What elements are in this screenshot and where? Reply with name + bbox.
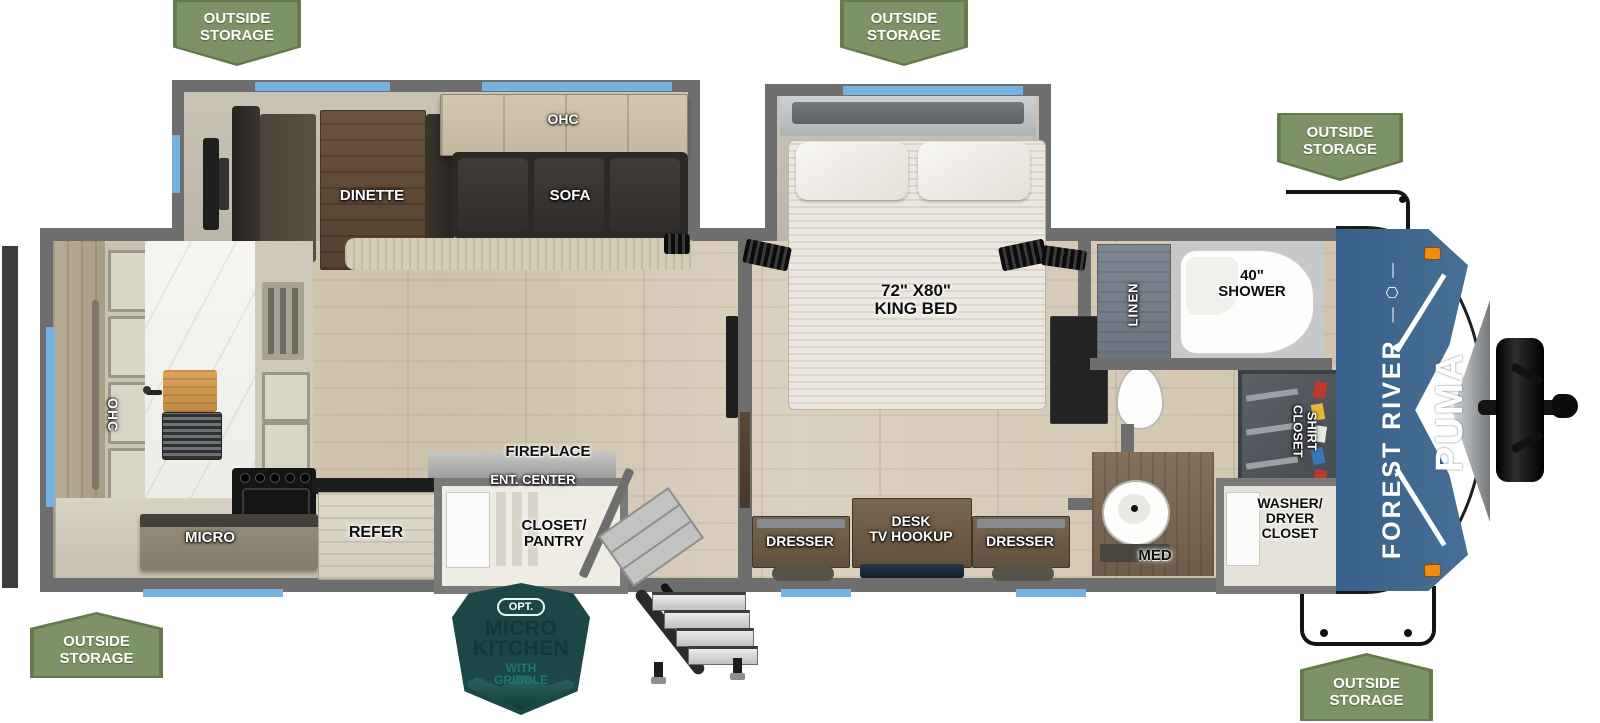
room-label-washer-dryer: WASHER/ DRYER CLOSET — [1242, 496, 1338, 541]
faucet-base — [143, 386, 151, 394]
forest-river-lockup: FOREST RIVER — ⬡ — — [1372, 250, 1412, 570]
room-label-dinette: DINETTE — [320, 188, 424, 204]
room-label-linen: LINEN — [1126, 282, 1141, 326]
room-label-micro: MICRO — [140, 530, 280, 546]
stove-knob — [270, 473, 280, 483]
stair-tread — [676, 628, 754, 647]
room-label-dresser-left: DRESSER — [752, 534, 848, 549]
outside-storage-badge-bottom-right: OUTSIDE STORAGE — [1300, 653, 1433, 721]
bedroom-partition-wall — [738, 241, 752, 578]
room-label-ohc-slide: OHC — [440, 112, 686, 127]
outside-storage-badge-bottom-left: OUTSIDE STORAGE — [30, 612, 163, 678]
vent-panel — [262, 282, 304, 360]
room-label-med: MED — [1120, 548, 1190, 564]
room-label-shirt-closet: SHIRT CLOSET — [1290, 405, 1319, 458]
bench-right — [992, 566, 1054, 581]
window — [46, 327, 55, 507]
room-label-closet-pantry: CLOSET/ PANTRY — [496, 518, 612, 550]
stove-knob — [285, 473, 295, 483]
dresser-top — [757, 519, 845, 528]
window — [255, 82, 390, 91]
dinette-bench-left-seat — [260, 114, 316, 262]
hitch-coupler — [1552, 394, 1578, 418]
option-badge-inner: OPT. MICRO KITCHEN WITH GRIDDLE — [457, 588, 585, 710]
stair-tread — [688, 646, 758, 665]
dresser-top — [977, 519, 1065, 528]
cabinet-door — [108, 316, 148, 378]
room-label-dresser-right: DRESSER — [972, 534, 1068, 549]
stair-foot — [651, 677, 666, 684]
room-label-ohc-kitchen: OHC — [105, 398, 121, 432]
room-label-refer: REFER — [318, 524, 434, 541]
pillow-left — [796, 142, 908, 200]
pantry-door — [446, 492, 490, 568]
sink-drain — [1131, 505, 1138, 512]
window — [1060, 589, 1086, 597]
wall-tv — [726, 316, 738, 418]
forest-river-emblem-icon: — ⬡ — — [1383, 261, 1401, 322]
rear-bumper — [2, 246, 18, 588]
cabinet-door — [262, 372, 310, 422]
outside-storage-badge-top-left: OUTSIDE STORAGE — [173, 0, 301, 66]
option-tag: OPT. — [497, 598, 545, 616]
bath-front-wall — [1090, 358, 1332, 370]
linen-label-wrap: LINEN — [1106, 262, 1160, 346]
stove-knob — [240, 473, 250, 483]
bathroom-sink — [1102, 480, 1170, 546]
stair-leg — [654, 662, 663, 678]
cabinet-door — [108, 250, 148, 312]
puma-lockup: PUMA — [1427, 292, 1473, 532]
brand-puma: PUMA — [1429, 352, 1472, 472]
frame-bolt-bottom-left — [1320, 629, 1328, 637]
room-label-ent-center: ENT. CENTER — [474, 473, 592, 487]
kitchen-ohc-label-wrap: OHC — [88, 382, 138, 448]
shirt-closet-label-wrap: SHIRT CLOSET — [1272, 392, 1336, 470]
stove-knob — [255, 473, 265, 483]
room-label-king-bed: 72" X80" KING BED — [816, 282, 1016, 319]
shower-room — [1172, 241, 1324, 363]
stair-leg — [733, 658, 742, 674]
outside-storage-badge-right: OUTSIDE STORAGE — [1277, 113, 1403, 181]
pillow-right — [918, 142, 1030, 200]
stair-foot — [730, 673, 745, 680]
window — [843, 86, 1023, 95]
desk-mat — [860, 564, 964, 578]
outside-storage-label: OUTSIDE STORAGE — [60, 633, 134, 668]
vent-slot — [292, 288, 298, 354]
option-title: MICRO KITCHEN — [473, 619, 569, 659]
hitch-jack — [1496, 338, 1544, 482]
tv-bracket — [219, 158, 229, 210]
tv-wall-mount — [203, 138, 219, 230]
tongue-frame-bottom — [1300, 586, 1436, 646]
headboard — [792, 102, 1024, 124]
marker-light-bottom — [1424, 564, 1441, 577]
window — [482, 82, 672, 91]
room-label-desk-tv: DESK TV HOOKUP — [852, 514, 970, 544]
frame-bolt-top — [1399, 196, 1406, 203]
window — [143, 589, 283, 597]
marker-light-top — [1424, 247, 1441, 260]
vent-slot — [268, 288, 274, 354]
window — [172, 135, 180, 193]
area-rug — [345, 238, 695, 270]
bench-left — [772, 566, 834, 581]
cutting-board — [163, 370, 217, 412]
stair-tread — [652, 592, 746, 611]
frame-bolt-bottom-right — [1404, 629, 1412, 637]
outside-storage-label: OUTSIDE STORAGE — [200, 10, 274, 45]
bedroom-door — [740, 412, 750, 508]
stair-tread — [664, 610, 750, 629]
valance-mark — [664, 234, 690, 254]
room-label-fireplace: FIREPLACE — [468, 444, 628, 460]
option-badge-micro-kitchen: OPT. MICRO KITCHEN WITH GRIDDLE — [452, 583, 590, 715]
stove-knob — [300, 473, 310, 483]
option-subtitle: WITH GRIDDLE — [494, 662, 548, 687]
brand-forest-river: FOREST RIVER — [1378, 338, 1407, 559]
outside-storage-label: OUTSIDE STORAGE — [867, 10, 941, 45]
outside-storage-label: OUTSIDE STORAGE — [1303, 124, 1377, 159]
microwave-top — [140, 514, 318, 527]
room-label-shower: 40" SHOWER — [1192, 268, 1312, 300]
vent-slot — [280, 288, 286, 354]
outside-storage-badge-top-middle: OUTSIDE STORAGE — [840, 0, 968, 66]
griddle — [162, 412, 222, 460]
outside-storage-label: OUTSIDE STORAGE — [1330, 675, 1404, 710]
cabinet-door — [262, 422, 310, 472]
window — [781, 589, 851, 597]
room-label-sofa: SOFA — [500, 188, 640, 204]
floorplan-scene: OUTSIDE STORAGE OUTSIDE STORAGE OUTSIDE … — [0, 0, 1600, 723]
